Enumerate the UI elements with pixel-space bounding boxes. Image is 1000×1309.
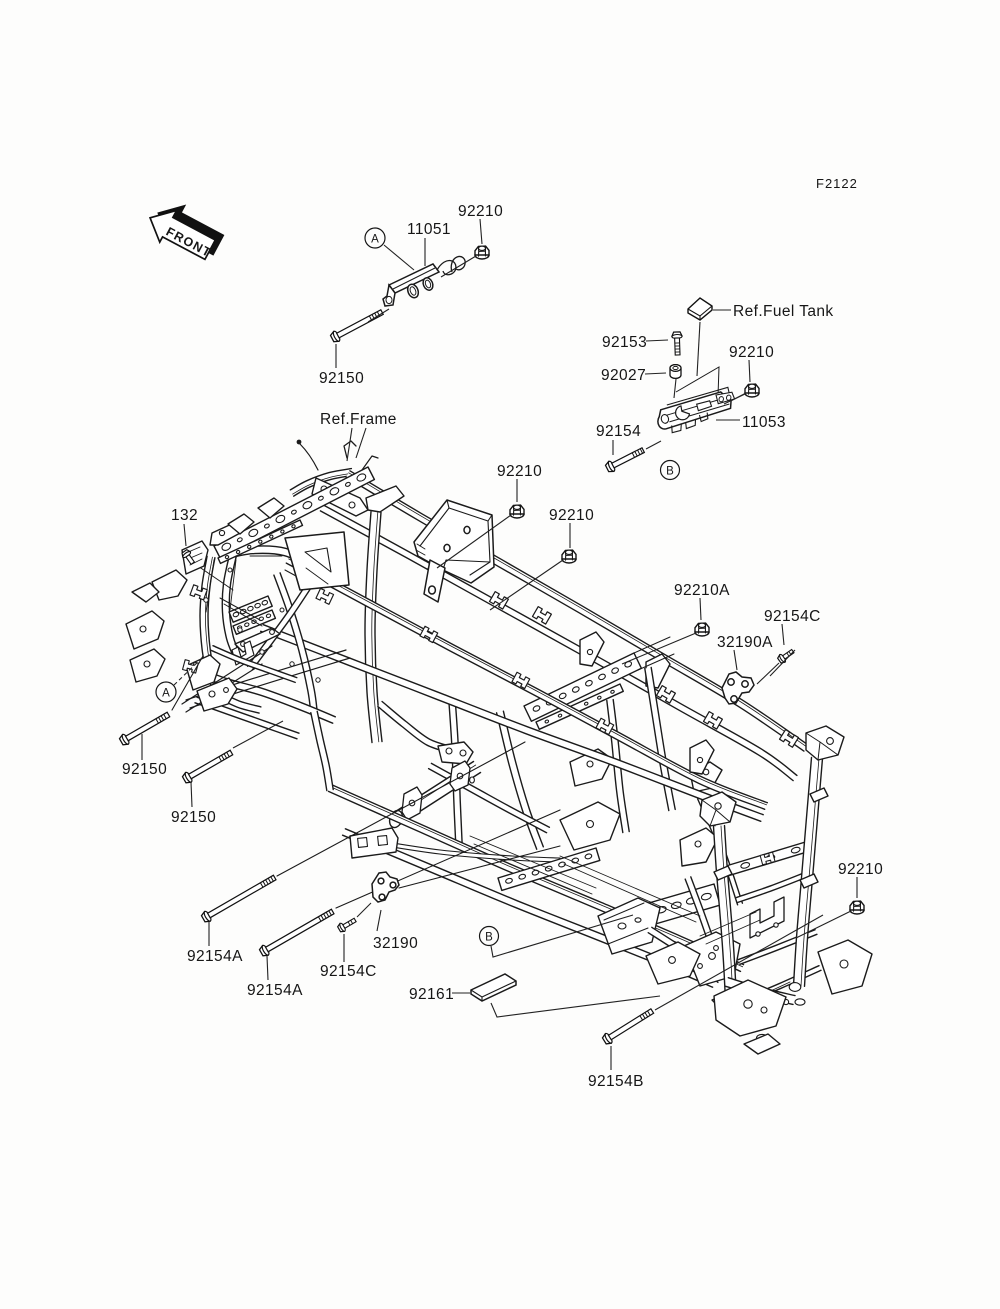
svg-text:A: A [371,234,379,246]
svg-text:92210: 92210 [549,507,594,524]
svg-text:92210: 92210 [458,203,503,220]
svg-text:B: B [485,932,493,944]
svg-text:92161: 92161 [409,986,454,1003]
svg-text:32190A: 32190A [717,634,773,651]
svg-text:92210: 92210 [729,344,774,361]
svg-text:Ref.Fuel Tank: Ref.Fuel Tank [733,303,834,320]
svg-text:92210A: 92210A [674,582,730,599]
svg-text:92154C: 92154C [764,608,821,625]
svg-text:92154: 92154 [596,423,641,440]
svg-text:92154C: 92154C [320,963,377,980]
svg-text:92150: 92150 [171,809,216,826]
svg-text:Ref.Frame: Ref.Frame [320,411,397,428]
svg-text:11053: 11053 [742,414,786,431]
svg-text:92150: 92150 [319,370,364,387]
svg-text:92210: 92210 [838,861,883,878]
svg-text:32190: 32190 [373,935,418,952]
svg-text:92154A: 92154A [187,948,243,965]
svg-text:B: B [666,466,674,478]
svg-text:132: 132 [171,507,198,524]
svg-text:F2122: F2122 [816,176,858,191]
svg-text:11051: 11051 [407,221,451,238]
svg-text:92027: 92027 [601,367,646,384]
svg-text:92154B: 92154B [588,1073,644,1090]
svg-text:A: A [162,688,170,700]
svg-text:92153: 92153 [602,334,647,351]
svg-text:92154A: 92154A [247,982,303,999]
svg-text:92150: 92150 [122,761,167,778]
svg-text:92210: 92210 [497,463,542,480]
